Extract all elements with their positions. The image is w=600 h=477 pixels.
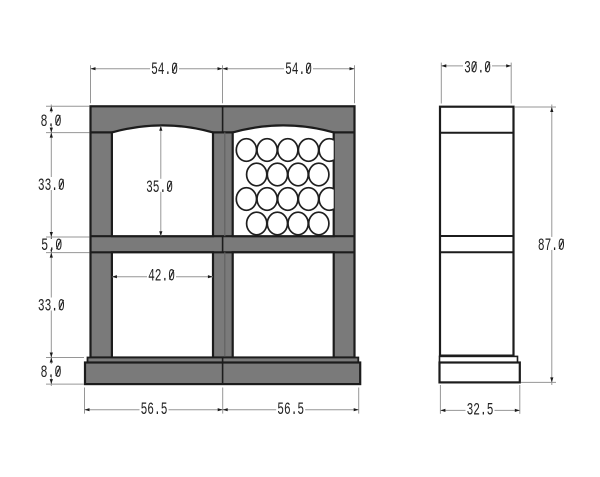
svg-text:56.5: 56.5	[277, 401, 304, 420]
svg-text:32.5: 32.5	[467, 401, 494, 420]
svg-text:8.0: 8.0	[40, 110, 61, 131]
svg-text:56.5: 56.5	[141, 401, 168, 420]
svg-text:8.0: 8.0	[40, 362, 61, 383]
svg-text:5.0: 5.0	[41, 235, 62, 256]
